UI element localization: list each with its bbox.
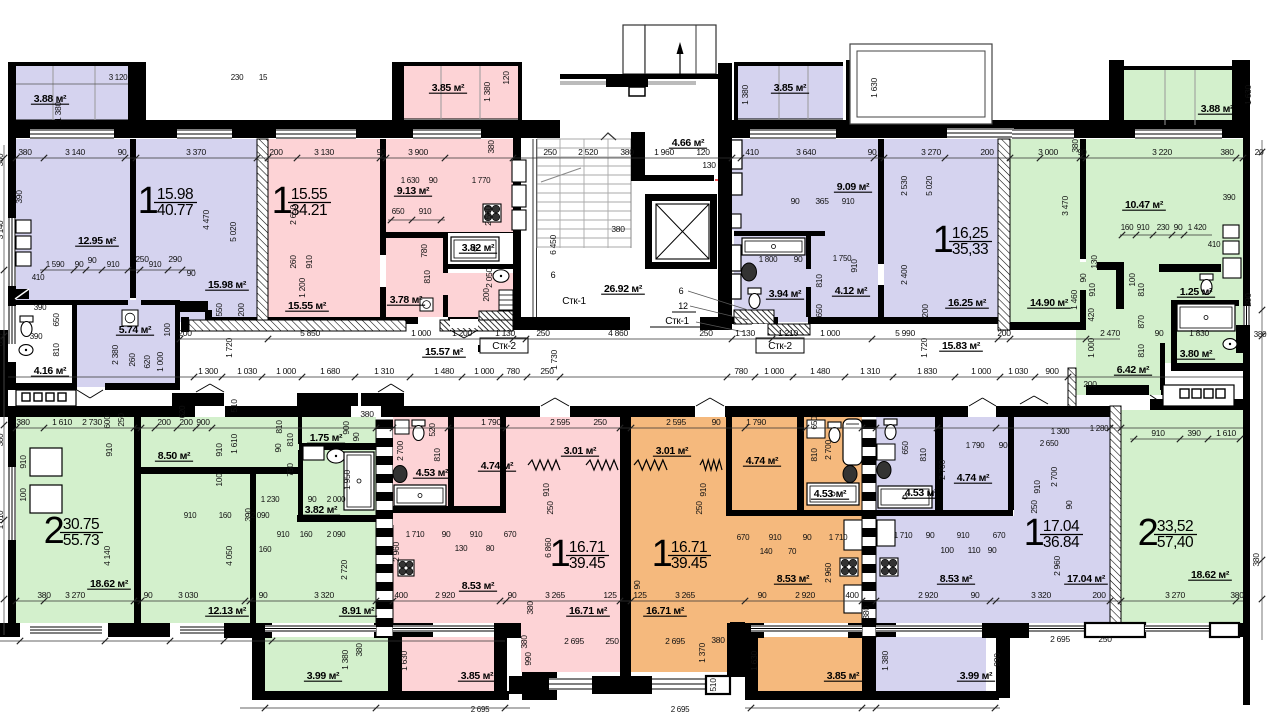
svg-text:6 450: 6 450 bbox=[548, 235, 558, 255]
svg-text:16.71: 16.71 bbox=[569, 539, 605, 556]
svg-text:15.57 м²: 15.57 м² bbox=[425, 346, 464, 358]
svg-text:1 300: 1 300 bbox=[1051, 427, 1070, 436]
svg-text:3 265: 3 265 bbox=[675, 590, 695, 600]
svg-text:3.85 м²: 3.85 м² bbox=[774, 82, 807, 94]
svg-text:2 695: 2 695 bbox=[665, 636, 685, 646]
svg-text:2 960: 2 960 bbox=[823, 563, 833, 583]
svg-text:1: 1 bbox=[1024, 512, 1045, 554]
svg-text:2 595: 2 595 bbox=[550, 417, 570, 427]
svg-text:380: 380 bbox=[0, 433, 5, 446]
svg-text:15.83 м²: 15.83 м² bbox=[942, 340, 981, 352]
svg-text:380: 380 bbox=[525, 601, 535, 615]
svg-text:3 265: 3 265 bbox=[545, 590, 565, 600]
svg-text:90: 90 bbox=[308, 494, 317, 504]
svg-text:1 380: 1 380 bbox=[482, 82, 492, 102]
svg-text:10.47 м²: 10.47 м² bbox=[1125, 199, 1164, 211]
svg-text:26.92 м²: 26.92 м² bbox=[604, 283, 643, 295]
svg-text:250: 250 bbox=[1098, 634, 1112, 644]
svg-text:90: 90 bbox=[632, 580, 642, 589]
svg-text:5 990: 5 990 bbox=[895, 328, 915, 338]
svg-text:3.01 м²: 3.01 м² bbox=[656, 445, 689, 457]
svg-text:380: 380 bbox=[1251, 553, 1261, 567]
svg-text:650: 650 bbox=[814, 304, 824, 318]
svg-text:1: 1 bbox=[138, 180, 159, 222]
svg-text:1.25 м²: 1.25 м² bbox=[1180, 286, 1213, 298]
svg-text:780: 780 bbox=[419, 244, 429, 258]
svg-text:90: 90 bbox=[712, 417, 721, 427]
svg-text:70: 70 bbox=[788, 547, 797, 556]
svg-text:650: 650 bbox=[0, 333, 5, 346]
svg-text:810: 810 bbox=[274, 420, 284, 434]
svg-text:2 650: 2 650 bbox=[1040, 439, 1059, 448]
svg-text:1 630: 1 630 bbox=[749, 651, 759, 671]
svg-text:900: 900 bbox=[1045, 366, 1059, 376]
svg-text:160: 160 bbox=[1121, 223, 1134, 232]
svg-text:1 030: 1 030 bbox=[1008, 366, 1028, 376]
svg-text:39.45: 39.45 bbox=[569, 555, 605, 572]
svg-text:4.74 м²: 4.74 м² bbox=[746, 455, 779, 467]
svg-text:4.12 м²: 4.12 м² bbox=[835, 285, 868, 297]
svg-text:1 130: 1 130 bbox=[495, 328, 515, 338]
svg-text:1 280: 1 280 bbox=[1090, 424, 1109, 433]
svg-text:57,40: 57,40 bbox=[1157, 534, 1194, 551]
svg-text:4 140: 4 140 bbox=[102, 546, 112, 566]
svg-text:1 000: 1 000 bbox=[971, 366, 991, 376]
svg-text:910: 910 bbox=[842, 197, 855, 206]
svg-text:250: 250 bbox=[605, 636, 619, 646]
svg-text:15.55: 15.55 bbox=[291, 186, 327, 203]
svg-text:3 270: 3 270 bbox=[921, 147, 941, 157]
svg-text:380: 380 bbox=[18, 147, 32, 157]
svg-text:780: 780 bbox=[734, 366, 748, 376]
svg-text:110: 110 bbox=[968, 545, 981, 555]
svg-text:90: 90 bbox=[377, 147, 386, 157]
svg-text:90: 90 bbox=[442, 529, 451, 539]
svg-text:990: 990 bbox=[992, 653, 1002, 667]
svg-text:3 370: 3 370 bbox=[186, 147, 206, 157]
svg-text:1 000: 1 000 bbox=[155, 352, 165, 372]
svg-text:90: 90 bbox=[144, 590, 153, 600]
svg-text:390: 390 bbox=[1223, 193, 1236, 202]
svg-text:1 730: 1 730 bbox=[549, 350, 559, 370]
svg-text:3 140: 3 140 bbox=[65, 147, 85, 157]
svg-text:100: 100 bbox=[214, 473, 224, 487]
svg-text:650: 650 bbox=[900, 441, 910, 455]
svg-text:2 400: 2 400 bbox=[899, 265, 909, 285]
svg-text:100: 100 bbox=[162, 323, 172, 337]
svg-text:750: 750 bbox=[285, 463, 295, 477]
svg-text:8.53 м²: 8.53 м² bbox=[462, 580, 495, 592]
svg-text:Стк-2: Стк-2 bbox=[768, 341, 792, 352]
svg-text:200: 200 bbox=[178, 328, 192, 338]
svg-text:380: 380 bbox=[1220, 147, 1234, 157]
svg-text:3 030: 3 030 bbox=[178, 590, 198, 600]
svg-text:90: 90 bbox=[1174, 222, 1183, 232]
svg-text:17.04 м²: 17.04 м² bbox=[1067, 573, 1106, 585]
svg-text:910: 910 bbox=[104, 443, 114, 457]
svg-text:390: 390 bbox=[34, 303, 47, 312]
svg-text:16.71 м²: 16.71 м² bbox=[646, 605, 685, 617]
svg-text:520: 520 bbox=[427, 423, 437, 437]
svg-text:400: 400 bbox=[394, 590, 408, 600]
svg-text:3.85 м²: 3.85 м² bbox=[827, 670, 860, 682]
svg-text:16,25: 16,25 bbox=[952, 225, 988, 242]
svg-text:3 000: 3 000 bbox=[1038, 147, 1058, 157]
svg-text:1.75 м²: 1.75 м² bbox=[310, 432, 343, 444]
svg-text:200: 200 bbox=[1092, 590, 1106, 600]
svg-text:90: 90 bbox=[429, 175, 438, 185]
svg-text:3.94 м²: 3.94 м² bbox=[769, 288, 802, 300]
svg-text:15.98 м²: 15.98 м² bbox=[208, 279, 247, 291]
svg-text:2 720: 2 720 bbox=[339, 560, 349, 580]
svg-text:380: 380 bbox=[711, 635, 725, 645]
svg-text:160: 160 bbox=[219, 511, 232, 520]
svg-text:410: 410 bbox=[32, 273, 45, 282]
svg-text:380: 380 bbox=[0, 153, 5, 166]
svg-text:1 610: 1 610 bbox=[0, 510, 5, 529]
svg-text:15.98: 15.98 bbox=[157, 186, 193, 203]
svg-text:2 695: 2 695 bbox=[471, 705, 490, 714]
svg-text:35,33: 35,33 bbox=[952, 241, 988, 258]
svg-text:3.85 м²: 3.85 м² bbox=[432, 82, 465, 94]
svg-text:100: 100 bbox=[18, 488, 28, 502]
svg-text:36.84: 36.84 bbox=[1043, 534, 1080, 551]
svg-text:1 480: 1 480 bbox=[810, 366, 830, 376]
svg-text:2 695: 2 695 bbox=[671, 705, 690, 714]
svg-text:380: 380 bbox=[486, 140, 496, 154]
svg-text:33,52: 33,52 bbox=[1157, 518, 1193, 535]
svg-text:14.90 м²: 14.90 м² bbox=[1030, 297, 1069, 309]
svg-text:12: 12 bbox=[678, 301, 688, 311]
svg-text:1 710: 1 710 bbox=[829, 533, 848, 542]
svg-text:250: 250 bbox=[699, 328, 713, 338]
svg-text:1 000: 1 000 bbox=[1086, 338, 1096, 358]
svg-text:200: 200 bbox=[236, 303, 246, 317]
svg-text:1 680: 1 680 bbox=[320, 366, 340, 376]
svg-text:1 480: 1 480 bbox=[434, 366, 454, 376]
svg-text:3 320: 3 320 bbox=[1031, 590, 1051, 600]
svg-text:2 920: 2 920 bbox=[918, 590, 938, 600]
svg-text:1 710: 1 710 bbox=[894, 531, 913, 540]
svg-text:910: 910 bbox=[957, 531, 970, 540]
svg-text:5 020: 5 020 bbox=[924, 176, 934, 196]
svg-text:910: 910 bbox=[107, 260, 120, 269]
svg-text:200: 200 bbox=[481, 288, 491, 302]
svg-text:4.53 м²: 4.53 м² bbox=[416, 467, 449, 479]
svg-text:3.88 м²: 3.88 м² bbox=[1201, 103, 1234, 115]
svg-text:2 700: 2 700 bbox=[1049, 467, 1059, 487]
svg-text:3 140: 3 140 bbox=[0, 220, 5, 239]
svg-text:16.71 м²: 16.71 м² bbox=[569, 605, 608, 617]
svg-text:390: 390 bbox=[14, 190, 24, 204]
svg-text:650: 650 bbox=[51, 313, 61, 327]
svg-text:910: 910 bbox=[1151, 428, 1165, 438]
svg-text:90: 90 bbox=[803, 532, 812, 542]
svg-text:Стк-1: Стк-1 bbox=[562, 296, 586, 307]
svg-text:4.74 м²: 4.74 м² bbox=[957, 472, 990, 484]
svg-text:810: 810 bbox=[51, 343, 61, 357]
svg-text:810: 810 bbox=[1136, 344, 1146, 358]
svg-text:910: 910 bbox=[184, 511, 197, 520]
svg-text:90: 90 bbox=[758, 590, 767, 600]
svg-text:1 130: 1 130 bbox=[735, 328, 755, 338]
svg-text:1 960: 1 960 bbox=[654, 147, 674, 157]
svg-text:3 640: 3 640 bbox=[796, 147, 816, 157]
svg-text:200: 200 bbox=[997, 328, 1011, 338]
svg-text:260: 260 bbox=[288, 255, 298, 269]
svg-text:1 300: 1 300 bbox=[198, 366, 218, 376]
svg-text:90: 90 bbox=[88, 255, 97, 265]
svg-text:1 610: 1 610 bbox=[52, 417, 72, 427]
svg-text:8.50 м²: 8.50 м² bbox=[158, 450, 191, 462]
svg-text:1 610: 1 610 bbox=[229, 434, 239, 454]
svg-text:380: 380 bbox=[354, 643, 364, 657]
svg-text:910: 910 bbox=[1137, 223, 1150, 232]
svg-text:1 230: 1 230 bbox=[261, 495, 280, 504]
svg-text:Стк-1: Стк-1 bbox=[665, 316, 689, 327]
svg-text:420: 420 bbox=[1086, 308, 1096, 322]
svg-text:910: 910 bbox=[1032, 480, 1042, 494]
svg-text:290: 290 bbox=[168, 254, 182, 264]
svg-text:Стк-2: Стк-2 bbox=[492, 341, 516, 352]
svg-text:230: 230 bbox=[231, 73, 244, 82]
svg-text:1 310: 1 310 bbox=[860, 366, 880, 376]
svg-text:16.25 м²: 16.25 м² bbox=[948, 297, 987, 309]
svg-text:90: 90 bbox=[1155, 328, 1164, 338]
svg-text:650: 650 bbox=[809, 416, 819, 430]
svg-text:990: 990 bbox=[523, 652, 533, 666]
svg-text:2 470: 2 470 bbox=[1100, 328, 1120, 338]
svg-text:780: 780 bbox=[506, 366, 520, 376]
svg-text:1 630: 1 630 bbox=[869, 78, 879, 98]
svg-text:1: 1 bbox=[652, 533, 673, 575]
svg-text:2 700: 2 700 bbox=[395, 441, 405, 461]
svg-text:40.77: 40.77 bbox=[157, 202, 193, 219]
svg-text:1 000: 1 000 bbox=[820, 328, 840, 338]
svg-text:510: 510 bbox=[229, 399, 239, 413]
svg-text:380: 380 bbox=[360, 409, 374, 419]
svg-text:5 020: 5 020 bbox=[228, 222, 238, 242]
svg-text:90: 90 bbox=[1064, 500, 1074, 509]
svg-text:620: 620 bbox=[142, 355, 152, 369]
svg-text:650: 650 bbox=[392, 207, 405, 216]
svg-text:1 000: 1 000 bbox=[474, 366, 494, 376]
svg-text:250: 250 bbox=[694, 501, 704, 515]
svg-text:390: 390 bbox=[1187, 428, 1201, 438]
svg-text:2 960: 2 960 bbox=[1052, 556, 1062, 576]
svg-text:670: 670 bbox=[737, 533, 750, 542]
svg-text:810: 810 bbox=[422, 270, 432, 284]
svg-text:90: 90 bbox=[1078, 273, 1088, 282]
svg-text:1: 1 bbox=[933, 219, 954, 261]
svg-text:3.99 м²: 3.99 м² bbox=[307, 670, 340, 682]
svg-text:810: 810 bbox=[918, 448, 928, 462]
svg-text:1 710: 1 710 bbox=[406, 530, 425, 539]
svg-text:910: 910 bbox=[277, 530, 290, 539]
svg-text:1 630: 1 630 bbox=[399, 651, 409, 671]
svg-text:15.55 м²: 15.55 м² bbox=[288, 300, 327, 312]
svg-text:125: 125 bbox=[603, 590, 617, 600]
svg-text:380: 380 bbox=[611, 224, 625, 234]
svg-text:2 090: 2 090 bbox=[251, 511, 270, 520]
svg-text:6 860: 6 860 bbox=[543, 538, 553, 558]
svg-text:1 770: 1 770 bbox=[472, 176, 491, 185]
svg-text:1 380: 1 380 bbox=[340, 650, 350, 670]
svg-text:120: 120 bbox=[501, 71, 511, 85]
svg-text:1 830: 1 830 bbox=[1189, 328, 1209, 338]
svg-text:2 595: 2 595 bbox=[666, 417, 686, 427]
svg-text:12.95 м²: 12.95 м² bbox=[78, 235, 117, 247]
svg-text:250: 250 bbox=[593, 417, 607, 427]
svg-text:6: 6 bbox=[679, 286, 684, 296]
svg-text:380: 380 bbox=[519, 635, 529, 649]
svg-text:15: 15 bbox=[259, 73, 268, 82]
svg-text:9.13 м²: 9.13 м² bbox=[397, 185, 430, 197]
svg-text:250: 250 bbox=[135, 254, 149, 264]
svg-text:1 790: 1 790 bbox=[746, 417, 766, 427]
svg-text:55.73: 55.73 bbox=[63, 532, 99, 549]
svg-text:2: 2 bbox=[44, 510, 65, 552]
svg-text:1 720: 1 720 bbox=[224, 338, 234, 358]
svg-text:2 560: 2 560 bbox=[483, 206, 493, 226]
svg-text:90: 90 bbox=[508, 590, 517, 600]
svg-text:2 700: 2 700 bbox=[823, 440, 833, 460]
svg-text:90: 90 bbox=[791, 196, 800, 206]
svg-text:3.99 м²: 3.99 м² bbox=[960, 670, 993, 682]
svg-text:1 380: 1 380 bbox=[880, 651, 890, 671]
svg-text:670: 670 bbox=[993, 531, 1006, 540]
svg-text:380: 380 bbox=[16, 417, 30, 427]
svg-text:80: 80 bbox=[486, 544, 495, 553]
svg-text:130: 130 bbox=[1089, 255, 1099, 269]
svg-text:120: 120 bbox=[696, 147, 710, 157]
svg-text:1 630: 1 630 bbox=[401, 176, 420, 185]
svg-text:4 050: 4 050 bbox=[224, 546, 234, 566]
svg-text:18.62 м²: 18.62 м² bbox=[1191, 569, 1230, 581]
svg-text:2 695: 2 695 bbox=[1050, 634, 1070, 644]
svg-text:1 590: 1 590 bbox=[46, 260, 65, 269]
svg-text:4 470: 4 470 bbox=[201, 210, 211, 230]
svg-text:3 130: 3 130 bbox=[314, 147, 334, 157]
svg-text:160: 160 bbox=[300, 530, 313, 539]
svg-text:5.74 м²: 5.74 м² bbox=[119, 324, 152, 336]
svg-text:1 370: 1 370 bbox=[697, 643, 707, 663]
svg-text:2 695: 2 695 bbox=[564, 636, 584, 646]
svg-text:130: 130 bbox=[702, 160, 716, 170]
svg-text:3.78 м²: 3.78 м² bbox=[390, 294, 423, 306]
svg-text:910: 910 bbox=[18, 455, 28, 469]
svg-text:380: 380 bbox=[861, 606, 871, 620]
svg-text:380: 380 bbox=[620, 147, 634, 157]
svg-text:910: 910 bbox=[214, 443, 224, 457]
svg-text:390: 390 bbox=[30, 332, 43, 341]
svg-text:2 530: 2 530 bbox=[899, 176, 909, 196]
svg-text:8.53 м²: 8.53 м² bbox=[777, 573, 810, 585]
svg-text:810: 810 bbox=[285, 433, 295, 447]
svg-text:550: 550 bbox=[214, 303, 224, 317]
svg-text:1 750: 1 750 bbox=[833, 254, 852, 263]
svg-text:3.01 м²: 3.01 м² bbox=[564, 445, 597, 457]
svg-text:910: 910 bbox=[419, 207, 432, 216]
svg-text:900: 900 bbox=[341, 421, 351, 435]
svg-text:1 000: 1 000 bbox=[276, 366, 296, 376]
svg-text:1 420: 1 420 bbox=[1188, 223, 1207, 232]
svg-text:2: 2 bbox=[1138, 512, 1159, 554]
svg-text:620: 620 bbox=[178, 405, 187, 418]
svg-text:1 630: 1 630 bbox=[1243, 85, 1253, 105]
svg-text:90: 90 bbox=[118, 147, 127, 157]
svg-text:1 210: 1 210 bbox=[778, 328, 798, 338]
svg-text:1 000: 1 000 bbox=[764, 366, 784, 376]
svg-text:250: 250 bbox=[116, 413, 126, 427]
svg-text:5 850: 5 850 bbox=[300, 328, 320, 338]
svg-text:4.74 м²: 4.74 м² bbox=[481, 460, 514, 472]
svg-text:125: 125 bbox=[633, 590, 647, 600]
svg-text:1 310: 1 310 bbox=[374, 366, 394, 376]
svg-text:2 920: 2 920 bbox=[795, 590, 815, 600]
svg-text:1 950: 1 950 bbox=[342, 470, 352, 490]
svg-text:380: 380 bbox=[1070, 139, 1080, 153]
svg-text:810: 810 bbox=[1136, 283, 1146, 297]
svg-text:600: 600 bbox=[102, 415, 112, 429]
svg-text:90: 90 bbox=[259, 590, 268, 600]
svg-text:260: 260 bbox=[127, 353, 137, 367]
svg-text:200: 200 bbox=[157, 417, 171, 427]
svg-text:2 090: 2 090 bbox=[327, 530, 346, 539]
svg-text:810: 810 bbox=[432, 448, 442, 462]
svg-text:90: 90 bbox=[999, 440, 1008, 450]
svg-text:250: 250 bbox=[543, 147, 557, 157]
svg-text:290: 290 bbox=[1243, 293, 1253, 307]
svg-text:200: 200 bbox=[1083, 379, 1097, 389]
svg-text:160: 160 bbox=[259, 545, 272, 554]
svg-text:100: 100 bbox=[940, 545, 954, 555]
svg-text:90: 90 bbox=[273, 443, 283, 452]
svg-text:90: 90 bbox=[926, 530, 935, 540]
svg-text:3 900: 3 900 bbox=[408, 147, 428, 157]
svg-text:17.04: 17.04 bbox=[1043, 518, 1080, 535]
svg-text:1 790: 1 790 bbox=[481, 417, 501, 427]
svg-text:30.75: 30.75 bbox=[63, 516, 99, 533]
svg-text:1 030: 1 030 bbox=[237, 366, 257, 376]
svg-text:4 860: 4 860 bbox=[608, 328, 628, 338]
svg-text:2 920: 2 920 bbox=[435, 590, 455, 600]
svg-text:410: 410 bbox=[1208, 240, 1221, 249]
svg-text:4.53 м²: 4.53 м² bbox=[814, 488, 847, 500]
svg-text:90: 90 bbox=[351, 432, 361, 441]
svg-text:90: 90 bbox=[971, 590, 980, 600]
svg-text:1 460: 1 460 bbox=[1069, 290, 1079, 310]
svg-text:4.53 м²: 4.53 м² bbox=[905, 487, 938, 499]
svg-text:140: 140 bbox=[760, 547, 773, 556]
svg-text:1 720: 1 720 bbox=[919, 338, 929, 358]
svg-text:2 520: 2 520 bbox=[578, 147, 598, 157]
svg-text:4.16 м²: 4.16 м² bbox=[34, 365, 67, 377]
svg-text:510: 510 bbox=[708, 678, 718, 692]
svg-text:130: 130 bbox=[455, 544, 468, 553]
svg-text:2 730: 2 730 bbox=[82, 417, 102, 427]
svg-text:90: 90 bbox=[794, 254, 803, 264]
svg-text:9.09 м²: 9.09 м² bbox=[837, 181, 870, 193]
svg-text:230: 230 bbox=[1157, 223, 1170, 232]
svg-text:3 320: 3 320 bbox=[314, 590, 334, 600]
svg-text:250: 250 bbox=[545, 501, 555, 515]
svg-text:1 790: 1 790 bbox=[966, 441, 985, 450]
svg-text:910: 910 bbox=[698, 483, 708, 497]
svg-text:3 220: 3 220 bbox=[1152, 147, 1172, 157]
svg-text:910: 910 bbox=[1087, 283, 1097, 297]
svg-text:670: 670 bbox=[504, 530, 517, 539]
